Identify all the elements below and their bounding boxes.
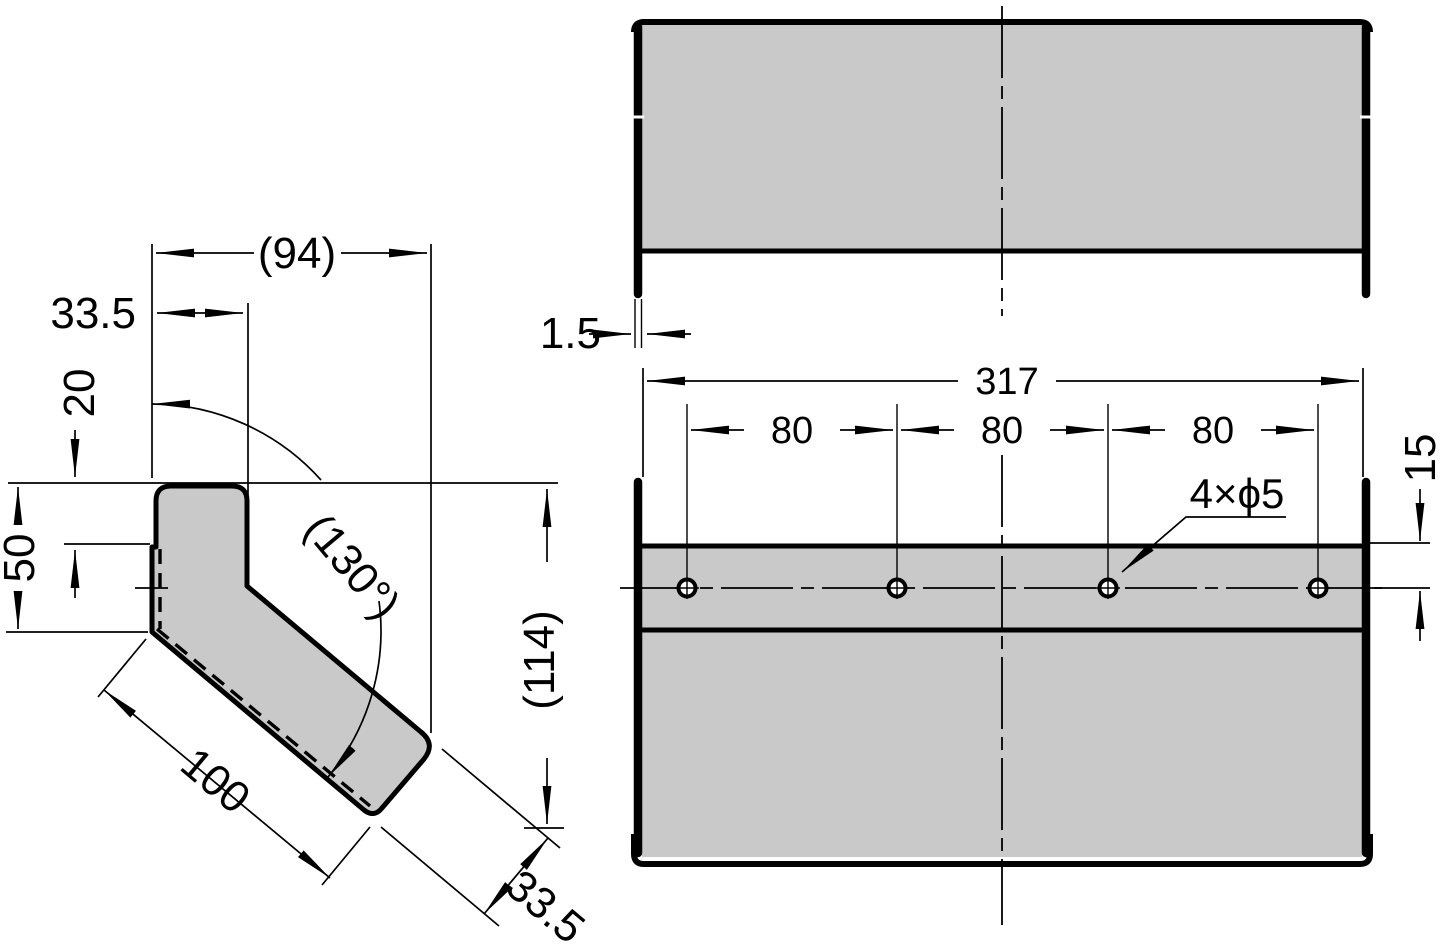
dim-hole-pitch-3: 80: [1112, 410, 1314, 452]
dim-hole-pitch-2: 80: [901, 410, 1104, 452]
dim-overall-width-label: 317: [975, 361, 1038, 403]
dim-arm-width-label: 33.5: [497, 861, 594, 951]
dim-hook-drop-label: 20: [55, 369, 104, 418]
dim-material-thickness-label: 1.5: [540, 309, 601, 358]
dim-hole-pitch-1: 80: [691, 410, 893, 452]
hole-spec-label: 4×ϕ5: [1190, 470, 1285, 517]
dim-hole-pitch-1-label: 80: [771, 410, 813, 452]
dim-back-height: 50: [0, 487, 148, 632]
dim-bend-angle-label: (130°): [295, 505, 410, 629]
dim-hole-offset-label: 15: [1396, 434, 1445, 483]
top-view: 1.5: [540, 6, 1372, 358]
dim-hole-offset: 15: [1367, 434, 1445, 641]
dim-arm-length-label: 100: [171, 739, 259, 824]
front-view: 317 80 80 80 15 4×ϕ5: [620, 361, 1445, 925]
technical-drawing-canvas: (94) 33.5 20 50 (130°): [0, 0, 1445, 951]
dim-hole-pitch-2-label: 80: [981, 410, 1023, 452]
dim-material-thickness: 1.5: [540, 299, 691, 358]
dim-arm-width: 33.5: [381, 749, 594, 951]
dim-overall-height: (114): [515, 489, 564, 828]
dim-overall-height-label: (114): [515, 610, 564, 709]
dim-hole-pitch-3-label: 80: [1192, 410, 1234, 452]
side-view: (94) 33.5 20 50 (130°): [0, 229, 594, 951]
dim-flange-width-label: 33.5: [50, 289, 136, 338]
dim-back-height-label: 50: [0, 534, 44, 583]
technical-drawing-page: (94) 33.5 20 50 (130°): [0, 0, 1445, 951]
dim-overall-depth-label: (94): [258, 229, 336, 278]
